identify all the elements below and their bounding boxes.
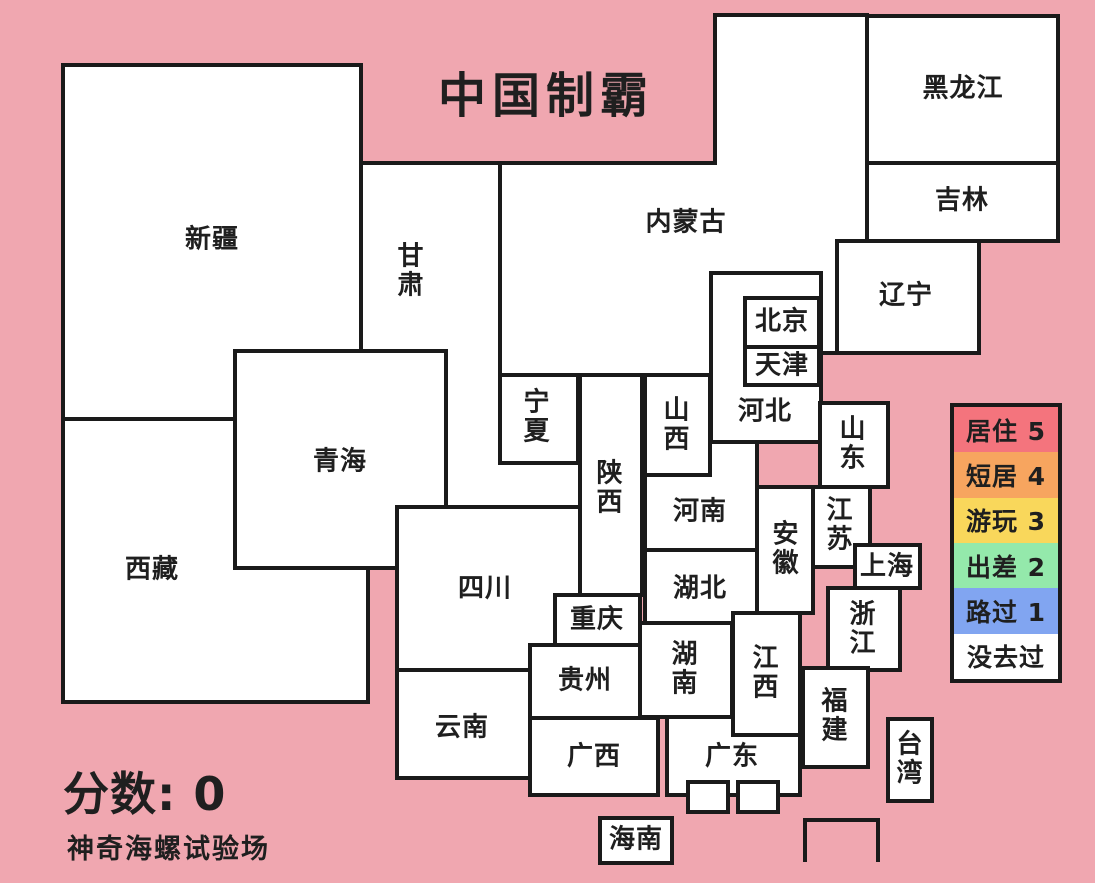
legend-item-1: 短居 4 [954, 452, 1058, 497]
province-ningxia[interactable] [500, 375, 578, 463]
legend-item-5: 没去过 [954, 634, 1058, 679]
province-hainan[interactable] [600, 818, 672, 863]
legend-item-2: 游玩 3 [954, 498, 1058, 543]
province-shanghai[interactable] [855, 545, 920, 588]
province-map [0, 0, 1095, 883]
south-china-sea-box [805, 820, 878, 862]
legend-item-3: 出差 2 [954, 543, 1058, 588]
province-heilongjiang[interactable] [867, 16, 1058, 163]
province-fujian[interactable] [803, 668, 868, 767]
province-guizhou[interactable] [530, 645, 640, 718]
province-jilin[interactable] [867, 163, 1058, 241]
province-yunnan[interactable] [397, 670, 530, 778]
province-shandong[interactable] [820, 403, 888, 487]
legend-item-4: 路过 1 [954, 588, 1058, 633]
province-guangxi[interactable] [530, 718, 658, 795]
china-conquest-page: 中国制霸 分数: 0 神奇海螺试验场 新疆西藏甘 肃青海内蒙古黑龙江吉林辽宁宁 … [0, 0, 1095, 883]
province-chongqing[interactable] [555, 595, 640, 645]
legend-item-0: 居住 5 [954, 407, 1058, 452]
province-macau[interactable] [738, 782, 778, 812]
province-beijing[interactable] [745, 298, 819, 347]
province-shaanxi[interactable] [580, 375, 642, 595]
province-jiangxi[interactable] [733, 613, 800, 735]
province-zhejiang[interactable] [828, 588, 900, 670]
province-hongkong[interactable] [688, 782, 728, 812]
province-taiwan[interactable] [888, 719, 932, 801]
province-tianjin[interactable] [745, 347, 819, 385]
province-hunan[interactable] [640, 623, 732, 717]
province-shanxi[interactable] [645, 375, 710, 475]
province-anhui[interactable] [757, 487, 813, 613]
province-liaoning[interactable] [837, 241, 979, 353]
visit-level-legend: 居住 5短居 4游玩 3出差 2路过 1没去过 [950, 403, 1062, 683]
